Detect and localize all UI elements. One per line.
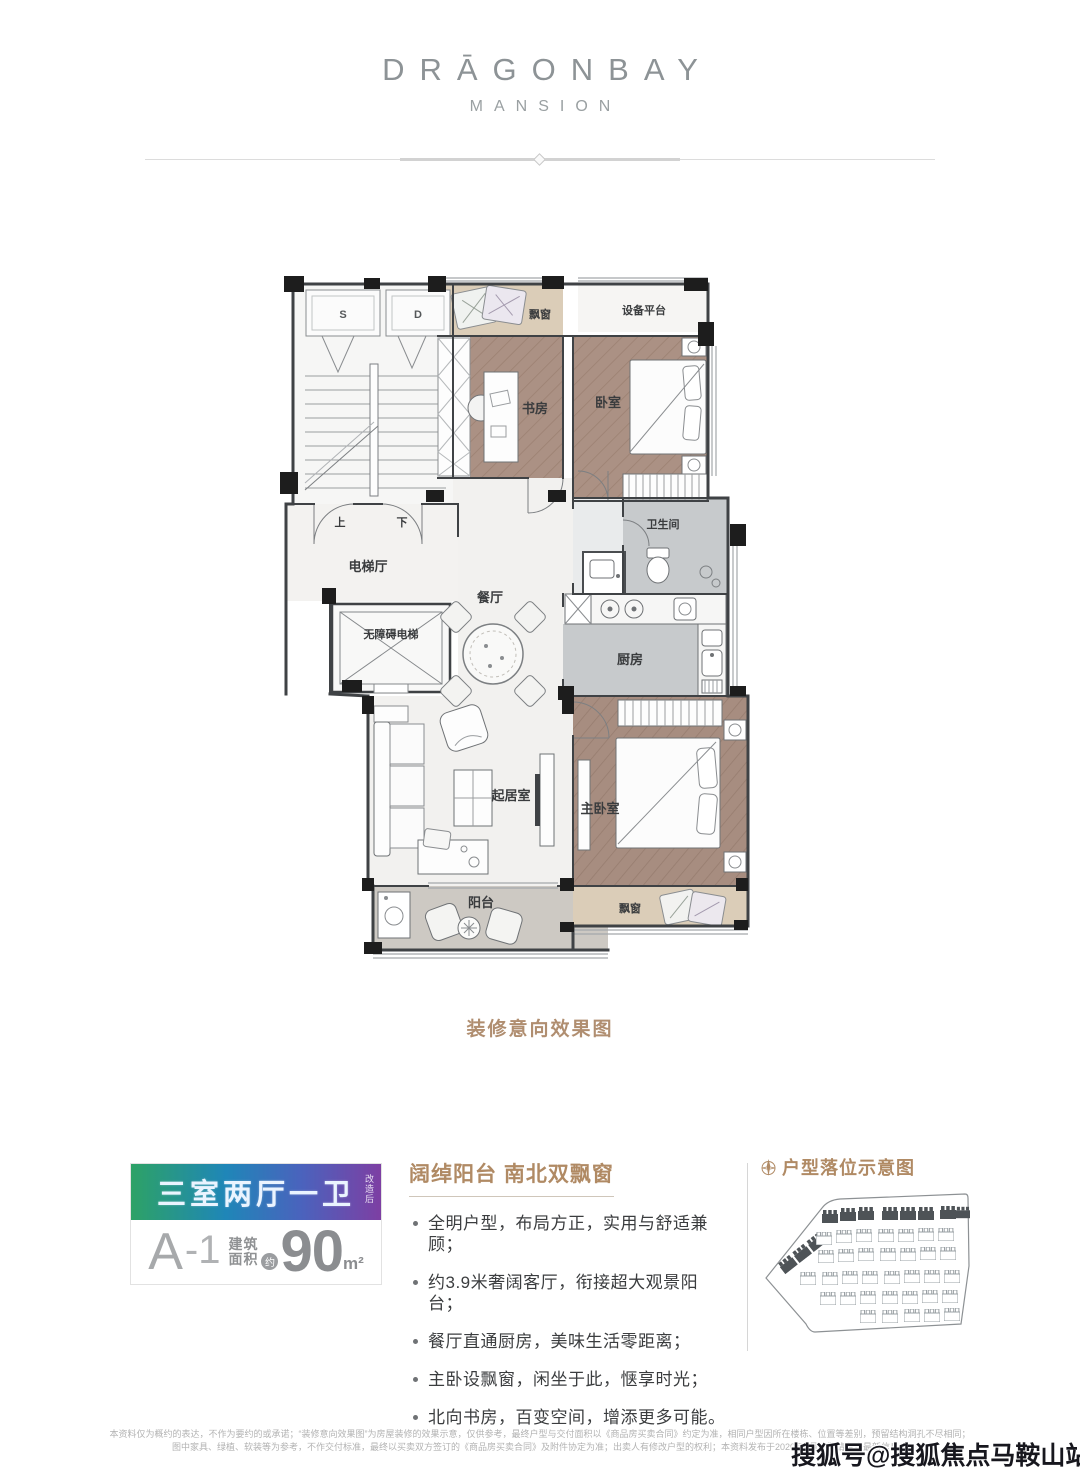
bullet-dot-icon [413,1377,418,1382]
area-unit: m² [343,1254,364,1274]
plan-caption: 装修意向效果图 [0,1014,1080,1041]
accessible-elevator [332,604,450,693]
bay-top-pillows [451,285,527,330]
label-living: 起居室 [490,788,530,803]
approx-badge: 约 [261,1253,278,1270]
floorplan-drawing: S D 上 下 电梯厅 无障碍电梯 飘窗 设备平台 书房 卧室 卫生间 厨房 餐… [278,276,766,988]
list-item: 全明户型，布局方正，实用与舒适兼顾； [409,1213,731,1255]
siteplan-section: 户型落位示意图 [760,1154,972,1343]
bullet-dot-icon [413,1415,418,1420]
siteplan-map [760,1186,972,1338]
feature-text: 主卧设飘窗，闲坐于此，惬享时光； [428,1369,708,1390]
divider-ornament-icon [533,153,546,166]
watermark: 搜狐号@搜狐焦点马鞍山站 [791,1436,1080,1472]
area-prefix-line2: 面积 [228,1252,258,1267]
label-balcony: 阳台 [468,895,494,910]
label-stairs-down: 下 [397,516,408,529]
bullet-dot-icon [413,1280,418,1285]
label-bay-bottom: 飘窗 [619,901,641,915]
label-closet-s: S [339,309,346,321]
siteplan-header: 户型落位示意图 [760,1154,972,1180]
section-divider [747,1163,748,1351]
unit-type-label: 三室两厅一卫 [157,1171,355,1213]
unit-type-note: 改造后 [363,1174,376,1204]
label-bay-top: 飘窗 [529,307,551,321]
label-kitchen: 厨房 [617,652,643,667]
header-divider [145,159,935,160]
label-closet-d: D [414,309,422,321]
brand-logo: DRĀGONBAY MANSION [0,52,1080,116]
features-list: 全明户型，布局方正，实用与舒适兼顾； 约3.9米奢阔客厅，衔接超大观景阳台； 餐… [409,1213,731,1428]
label-equipment-platform: 设备平台 [622,303,666,317]
label-master-bedroom: 主卧室 [580,801,619,816]
unit-area-row: A -1 建筑 面积 约 90 m² [131,1220,381,1284]
unit-code: A [148,1222,183,1282]
flyer-page: DRĀGONBAY MANSION [0,0,1080,1477]
area-prefix: 建筑 面积 [228,1237,258,1267]
feature-text: 全明户型，布局方正，实用与舒适兼顾； [428,1213,731,1255]
feature-text: 餐厅直通厨房，美味生活零距离； [428,1331,691,1352]
label-study: 书房 [522,401,548,416]
bedroom-north [623,338,708,500]
list-item: 北向书房，百变空间，增添更多可能。 [409,1407,731,1428]
unit-card: 三室两厅一卫 改造后 A -1 建筑 面积 约 90 m² [130,1163,382,1285]
unit-type-banner: 三室两厅一卫 改造后 [131,1164,381,1220]
label-bathroom: 卫生间 [647,517,680,531]
label-bedroom: 卧室 [595,395,621,410]
unit-number: -1 [185,1228,221,1273]
brand-name: DRĀGONBAY [0,52,1080,88]
area-prefix-line1: 建筑 [228,1237,258,1252]
bullet-dot-icon [413,1221,418,1226]
brand-subtitle: MANSION [0,98,1080,116]
features-heading: 阔绰阳台 南北双飘窗 [409,1158,614,1197]
feature-text: 约3.9米奢阔客厅，衔接超大观景阳台； [428,1272,731,1314]
siteplan-title: 户型落位示意图 [782,1154,915,1180]
feature-text: 北向书房，百变空间，增添更多可能。 [428,1407,726,1428]
list-item: 约3.9米奢阔客厅，衔接超大观景阳台； [409,1272,731,1314]
area-value: 90 [280,1222,343,1282]
features-section: 阔绰阳台 南北双飘窗 全明户型，布局方正，实用与舒适兼顾； 约3.9米奢阔客厅，… [409,1158,731,1445]
label-dining: 餐厅 [476,590,503,605]
list-item: 餐厅直通厨房，美味生活零距离； [409,1331,731,1352]
floorplan-area: S D 上 下 电梯厅 无障碍电梯 飘窗 设备平台 书房 卧室 卫生间 厨房 餐… [278,276,766,990]
bullet-dot-icon [413,1339,418,1344]
label-stairs-up: 上 [335,515,346,529]
label-accessible-elevator: 无障碍电梯 [363,627,419,641]
compass-icon [760,1158,777,1177]
label-elevator-hall: 电梯厅 [348,559,387,574]
list-item: 主卧设飘窗，闲坐于此，惬享时光； [409,1369,731,1390]
